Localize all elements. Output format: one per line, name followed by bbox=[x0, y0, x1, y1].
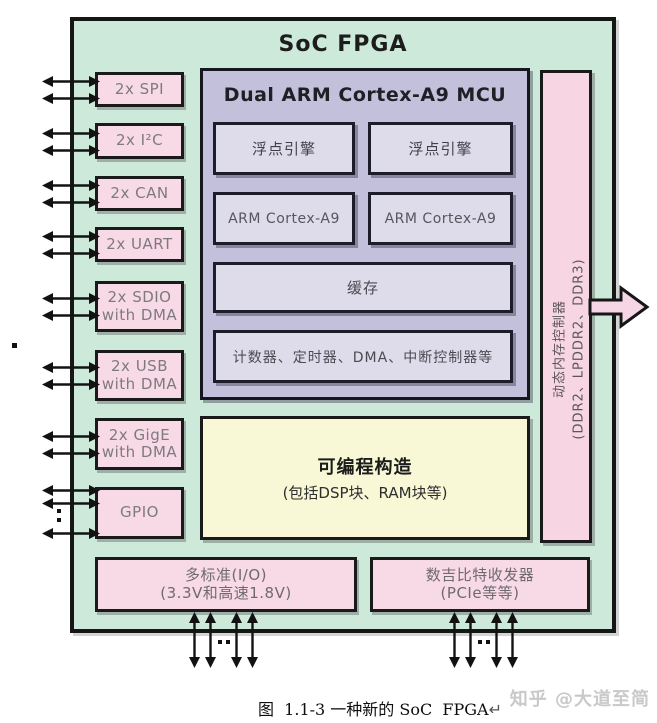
bidirectional-arrow-icon bbox=[42, 247, 100, 260]
ellipsis-dot bbox=[57, 518, 61, 522]
ellipsis-dot bbox=[478, 640, 482, 644]
timers-dma-label: 计数器、定时器、DMA、中断控制器等 bbox=[233, 347, 493, 367]
bidirectional-arrow-icon bbox=[42, 292, 100, 305]
caption-text: 图 1.1-3 一种新的 SoC FPGA bbox=[258, 700, 489, 719]
bidirectional-arrow-icon bbox=[42, 484, 100, 497]
memory-controller-box: 动态内存控制器 (DDR2、LPDDR2、DDR3) bbox=[540, 70, 592, 543]
peripheral-label: with DMA bbox=[102, 444, 177, 461]
ellipsis-dot bbox=[226, 640, 230, 644]
arm-core-label: ARM Cortex-A9 bbox=[228, 211, 340, 227]
peripheral-label: 2x I²C bbox=[116, 132, 163, 149]
peripheral-box-uart: 2x UART bbox=[95, 227, 184, 262]
bidirectional-arrow-icon bbox=[42, 309, 100, 322]
arm-core-label: ARM Cortex-A9 bbox=[385, 211, 497, 227]
peripheral-box-i2c: 2x I²C bbox=[95, 123, 184, 159]
bidirectional-arrow-icon bbox=[42, 447, 100, 460]
peripheral-box-gpio: GPIO bbox=[95, 487, 184, 539]
peripheral-box-usb: 2x USB with DMA bbox=[95, 350, 184, 401]
bidirectional-arrow-icon bbox=[42, 497, 100, 510]
io-bank-sublabel: (3.3V和高速1.8V) bbox=[160, 585, 291, 602]
multistandard-io-box: 多标准(I/O) (3.3V和高速1.8V) bbox=[95, 557, 357, 612]
bidirectional-arrow-icon bbox=[506, 612, 519, 668]
memory-bus-arrow-icon bbox=[588, 283, 650, 331]
io-bank-label: 多标准(I/O) bbox=[185, 567, 267, 584]
bidirectional-arrow-icon bbox=[230, 612, 243, 668]
peripheral-box-gige: 2x GigE with DMA bbox=[95, 418, 184, 470]
stray-mark bbox=[12, 343, 17, 348]
peripheral-label: 2x SDIO bbox=[108, 289, 172, 306]
bidirectional-arrow-icon bbox=[204, 612, 217, 668]
arm-core-right-box: ARM Cortex-A9 bbox=[368, 192, 513, 245]
peripheral-label: GPIO bbox=[120, 504, 159, 521]
bidirectional-arrow-icon bbox=[490, 612, 503, 668]
peripheral-label: 2x SPI bbox=[115, 81, 164, 98]
bidirectional-arrow-icon bbox=[42, 75, 100, 88]
fp-engine-label: 浮点引擎 bbox=[408, 138, 472, 159]
bidirectional-arrow-icon bbox=[42, 430, 100, 443]
peripheral-label: 2x UART bbox=[106, 236, 172, 253]
soc-fpga-figure: SoC FPGA 2x SPI 2x I²C 2x CAN 2x UART 2x… bbox=[0, 0, 657, 723]
fabric-subtitle: (包括DSP块、RAM块等) bbox=[283, 482, 448, 503]
bidirectional-arrow-icon bbox=[448, 612, 461, 668]
bidirectional-arrow-icon bbox=[42, 361, 100, 374]
bidirectional-arrow-icon bbox=[464, 612, 477, 668]
return-mark: ↵ bbox=[489, 700, 502, 719]
memory-controller-name: 动态内存控制器 bbox=[550, 300, 570, 398]
fp-engine-left-box: 浮点引擎 bbox=[213, 122, 355, 175]
peripheral-label: 2x CAN bbox=[110, 185, 168, 202]
bidirectional-arrow-icon bbox=[42, 196, 100, 209]
bidirectional-arrow-icon bbox=[42, 230, 100, 243]
memory-controller-label: 动态内存控制器 (DDR2、LPDDR2、DDR3) bbox=[544, 113, 596, 586]
cache-box: 缓存 bbox=[213, 262, 513, 313]
bidirectional-arrow-icon bbox=[42, 527, 100, 540]
peripheral-label: with DMA bbox=[102, 307, 177, 324]
mcu-title: Dual ARM Cortex-A9 MCU bbox=[200, 84, 530, 106]
peripheral-box-sdio: 2x SDIO with DMA bbox=[95, 281, 184, 332]
watermark: 知乎 @大道至简 bbox=[510, 685, 650, 711]
bidirectional-arrow-icon bbox=[42, 378, 100, 391]
bidirectional-arrow-icon bbox=[188, 612, 201, 668]
cache-label: 缓存 bbox=[347, 277, 379, 298]
memory-controller-types: (DDR2、LPDDR2、DDR3) bbox=[570, 258, 590, 439]
bidirectional-arrow-icon bbox=[42, 92, 100, 105]
ellipsis-dot bbox=[218, 640, 222, 644]
bidirectional-arrow-icon bbox=[42, 127, 100, 140]
bidirectional-arrow-icon bbox=[246, 612, 259, 668]
peripheral-label: 2x USB bbox=[111, 358, 168, 375]
programmable-fabric-box: 可编程构造 (包括DSP块、RAM块等) bbox=[200, 416, 530, 540]
peripheral-box-spi: 2x SPI bbox=[95, 72, 184, 107]
peripheral-label: with DMA bbox=[102, 376, 177, 393]
transceiver-box: 数吉比特收发器 (PCIe等等) bbox=[370, 557, 590, 612]
transceiver-label: 数吉比特收发器 bbox=[426, 567, 535, 584]
fabric-title: 可编程构造 bbox=[318, 453, 413, 479]
diagram-title: SoC FPGA bbox=[70, 32, 616, 57]
peripheral-label: 2x GigE bbox=[109, 427, 170, 444]
ellipsis-dot bbox=[486, 640, 490, 644]
fp-engine-right-box: 浮点引擎 bbox=[368, 122, 513, 175]
transceiver-sublabel: (PCIe等等) bbox=[441, 585, 520, 602]
arm-core-left-box: ARM Cortex-A9 bbox=[213, 192, 355, 245]
bidirectional-arrow-icon bbox=[42, 179, 100, 192]
peripheral-box-can: 2x CAN bbox=[95, 176, 184, 211]
ellipsis-dot bbox=[57, 509, 61, 513]
bidirectional-arrow-icon bbox=[42, 144, 100, 157]
timers-dma-box: 计数器、定时器、DMA、中断控制器等 bbox=[213, 330, 513, 383]
fp-engine-label: 浮点引擎 bbox=[252, 138, 316, 159]
